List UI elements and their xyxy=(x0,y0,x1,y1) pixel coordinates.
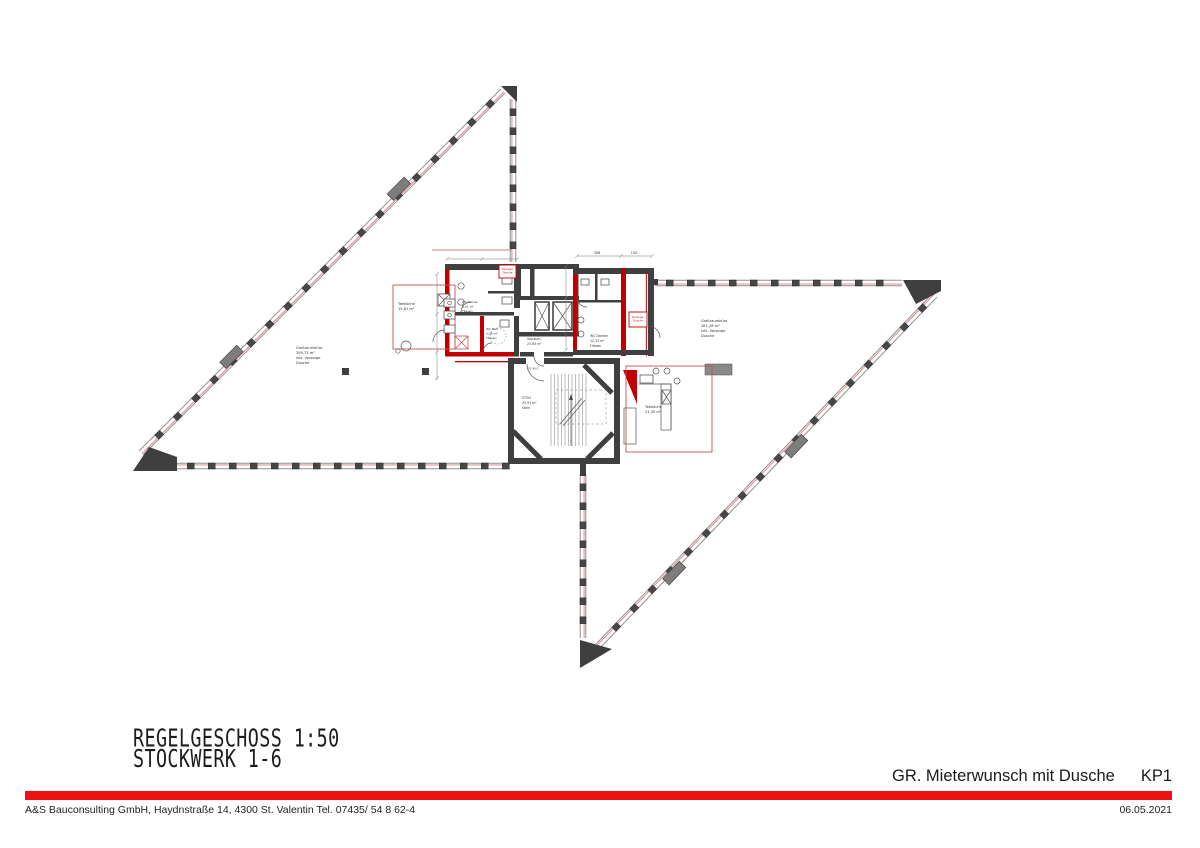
window-mullion xyxy=(302,283,311,292)
window-mullion xyxy=(334,463,341,469)
room-label-office-left: Großraumbüro 290,73 m² inkl. Vorsorge Du… xyxy=(296,346,323,365)
window-mullion xyxy=(510,185,516,192)
window-mullion xyxy=(449,136,458,145)
lower-wing-west-facade xyxy=(580,474,586,638)
window-mullion xyxy=(191,393,200,402)
window-mullion xyxy=(774,454,783,463)
variant-title: GR. Mieterwunsch mit DuscheKP1 xyxy=(892,767,1172,786)
window-mullion xyxy=(876,280,883,286)
window-mullion xyxy=(687,280,694,286)
window-mullion xyxy=(439,463,446,469)
window-mullion xyxy=(630,604,639,613)
window-mullion xyxy=(756,472,765,481)
shower-provision-note: Vorsorge Dusche xyxy=(499,265,516,278)
room-label-wc-acc: WC Beh. 3,98 m² Fliesen xyxy=(486,327,500,340)
window-mullion xyxy=(580,560,586,567)
footer-company-line: A&S Bauconsulting GmbH, Haydnstraße 14, … xyxy=(25,804,415,816)
room-label-wc-men: WC Herren 9,61 m² Fliesen xyxy=(462,300,479,313)
window-mullion xyxy=(882,341,891,350)
room-label-wc-women: WC Damen 12,33 m² Fliesen xyxy=(590,334,609,348)
stair-treads xyxy=(551,374,586,446)
variant-code: KP1 xyxy=(1141,767,1172,785)
room-label-lobby: Vorraum 23,63 m² xyxy=(527,337,542,346)
window-mullion xyxy=(612,622,621,631)
window-mullion xyxy=(292,463,299,469)
window-mullion xyxy=(510,242,516,249)
window-mullion xyxy=(460,463,467,469)
window-mullion xyxy=(580,503,586,510)
upper-wing-east-facade xyxy=(510,99,516,262)
window-mullion xyxy=(210,375,219,384)
window-mullion xyxy=(430,154,439,163)
window-mullion xyxy=(283,302,292,311)
window-mullion xyxy=(900,322,909,331)
window-mullion xyxy=(418,463,425,469)
window-mullion xyxy=(813,280,820,286)
svg-text:Vorsorge Dusche: Vorsorge Dusche xyxy=(501,267,513,275)
shower-marking-wedge xyxy=(623,370,637,444)
variant-name: GR. Mieterwunsch mit Dusche xyxy=(892,767,1115,785)
window-mullion xyxy=(375,210,384,219)
window-mullion xyxy=(247,338,256,347)
elevator-shaft xyxy=(535,302,549,330)
window-mullion xyxy=(357,228,366,237)
window-mullion xyxy=(720,510,729,519)
door-rating-label: EI2 90-C xyxy=(528,367,539,371)
annotation-text: Vorsorge xyxy=(501,267,513,271)
window-mullion xyxy=(810,416,819,425)
upper-wing-south-facade xyxy=(176,463,510,469)
upper-wing-hypotenuse xyxy=(139,89,505,455)
window-mullion xyxy=(229,463,236,469)
window-mullion xyxy=(684,547,693,556)
dimension-value: 306 xyxy=(594,251,600,255)
window-mullion xyxy=(510,109,516,116)
window-mullion xyxy=(648,585,657,594)
floor-plan: Vorsorge Dusche Vorsorge Dusche Großraum… xyxy=(0,0,1200,848)
room-label-office-right: Großraumbüro 281,26 m² inkl. Vorsorge Du… xyxy=(701,319,728,338)
window-mullion xyxy=(338,246,347,255)
window-mullion xyxy=(846,379,855,388)
svg-text:Vorsorge Dusche: Vorsorge Dusche xyxy=(632,315,644,323)
window-mullion xyxy=(187,463,194,469)
room-label-tea-left: Teeküche 15,81 m² xyxy=(397,302,416,311)
dimension-value: 150 xyxy=(631,251,637,255)
window-mullion xyxy=(580,484,586,491)
stair-hall xyxy=(508,358,620,464)
window-mullion xyxy=(828,397,837,406)
window-mullion xyxy=(580,598,586,605)
drawing-title-line2: STOCKWERK 1-6 xyxy=(133,745,282,773)
elevator-block xyxy=(517,264,579,337)
window-mullion xyxy=(864,360,873,369)
window-mullion xyxy=(738,491,747,500)
window-mullion xyxy=(510,147,516,154)
window-mullion xyxy=(510,166,516,173)
floor-plan-sheet: Vorsorge Dusche Vorsorge Dusche Großraum… xyxy=(0,0,1200,848)
window-mullion xyxy=(155,430,164,439)
window-mullion xyxy=(708,280,715,286)
window-mullion xyxy=(834,280,841,286)
window-mullion xyxy=(320,265,329,274)
window-mullion xyxy=(486,99,495,108)
annotation-text: Dusche xyxy=(503,271,513,275)
window-mullion xyxy=(702,529,711,538)
window-mullion xyxy=(750,280,757,286)
window-mullion xyxy=(355,463,362,469)
footer-date: 06.05.2021 xyxy=(1119,804,1172,816)
window-mullion xyxy=(467,118,476,127)
window-mullion xyxy=(666,280,673,286)
window-mullion xyxy=(265,320,274,329)
annotation-text: Dusche xyxy=(633,319,643,323)
window-mullion xyxy=(250,463,257,469)
window-mullion xyxy=(580,579,586,586)
window-mullion xyxy=(412,173,421,182)
window-mullion xyxy=(855,280,862,286)
window-mullion xyxy=(510,223,516,230)
tea-kitchen-right xyxy=(626,366,712,452)
window-mullion xyxy=(510,204,516,211)
title-underline-bar xyxy=(25,791,1172,800)
lower-wing-hypotenuse xyxy=(596,293,937,648)
window-mullion xyxy=(918,304,927,313)
window-mullion xyxy=(580,617,586,624)
room-label-tea-right: Teeküche 21,35 m² xyxy=(644,405,663,414)
window-mullion xyxy=(271,463,278,469)
window-mullion xyxy=(208,463,215,469)
window-mullion xyxy=(580,522,586,529)
window-mullion xyxy=(173,412,182,421)
window-mullion xyxy=(771,280,778,286)
window-mullion xyxy=(376,463,383,469)
annotation-text: Vorsorge xyxy=(632,315,644,319)
room-label-stair: STGH 33,91 m² Stein xyxy=(522,396,538,410)
elevator-shaft xyxy=(553,302,572,330)
window-mullion xyxy=(481,463,488,469)
shower-provision-note: Vorsorge Dusche xyxy=(629,312,647,327)
lower-wing-north-facade xyxy=(655,280,902,286)
drawing-title: REGELGESCHOSS 1:50STOCKWERK 1-6 xyxy=(133,729,340,770)
window-mullion xyxy=(397,463,404,469)
window-mullion xyxy=(510,128,516,135)
corner-solids xyxy=(133,86,941,668)
window-mullion xyxy=(313,463,320,469)
window-mullion xyxy=(792,280,799,286)
window-mullion xyxy=(580,541,586,548)
window-mullion xyxy=(729,280,736,286)
